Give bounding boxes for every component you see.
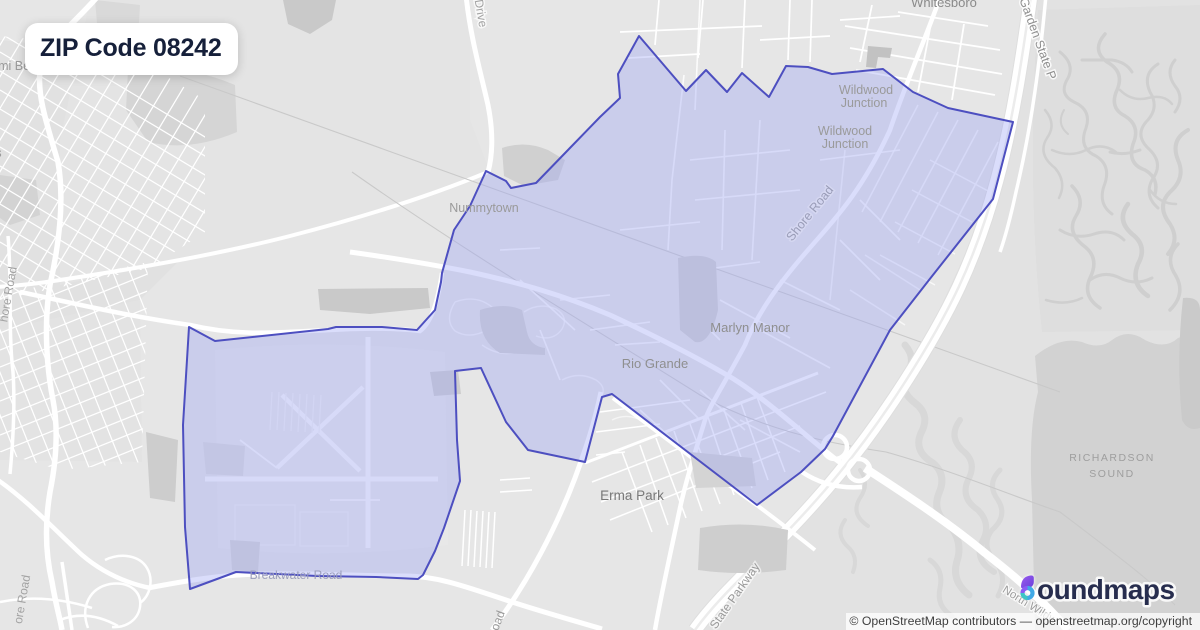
svg-text:Villas: Villas <box>0 146 2 160</box>
svg-text:Erma Park: Erma Park <box>600 488 664 503</box>
svg-text:Junction: Junction <box>841 96 888 110</box>
svg-text:Junction: Junction <box>822 137 869 151</box>
svg-text:Breakwater Road: Breakwater Road <box>250 568 343 582</box>
svg-text:Nummytown: Nummytown <box>449 201 519 215</box>
svg-text:oundmaps: oundmaps <box>1037 574 1175 605</box>
svg-text:RICHARDSON: RICHARDSON <box>1069 452 1155 464</box>
svg-text:SOUND: SOUND <box>1089 468 1134 480</box>
svg-text:Rio Grande: Rio Grande <box>622 356 688 371</box>
svg-text:Wildwood: Wildwood <box>839 83 893 97</box>
svg-text:Wildwood: Wildwood <box>818 124 872 138</box>
svg-text:Whitesboro: Whitesboro <box>911 0 977 10</box>
svg-text:Marlyn Manor: Marlyn Manor <box>710 320 790 335</box>
